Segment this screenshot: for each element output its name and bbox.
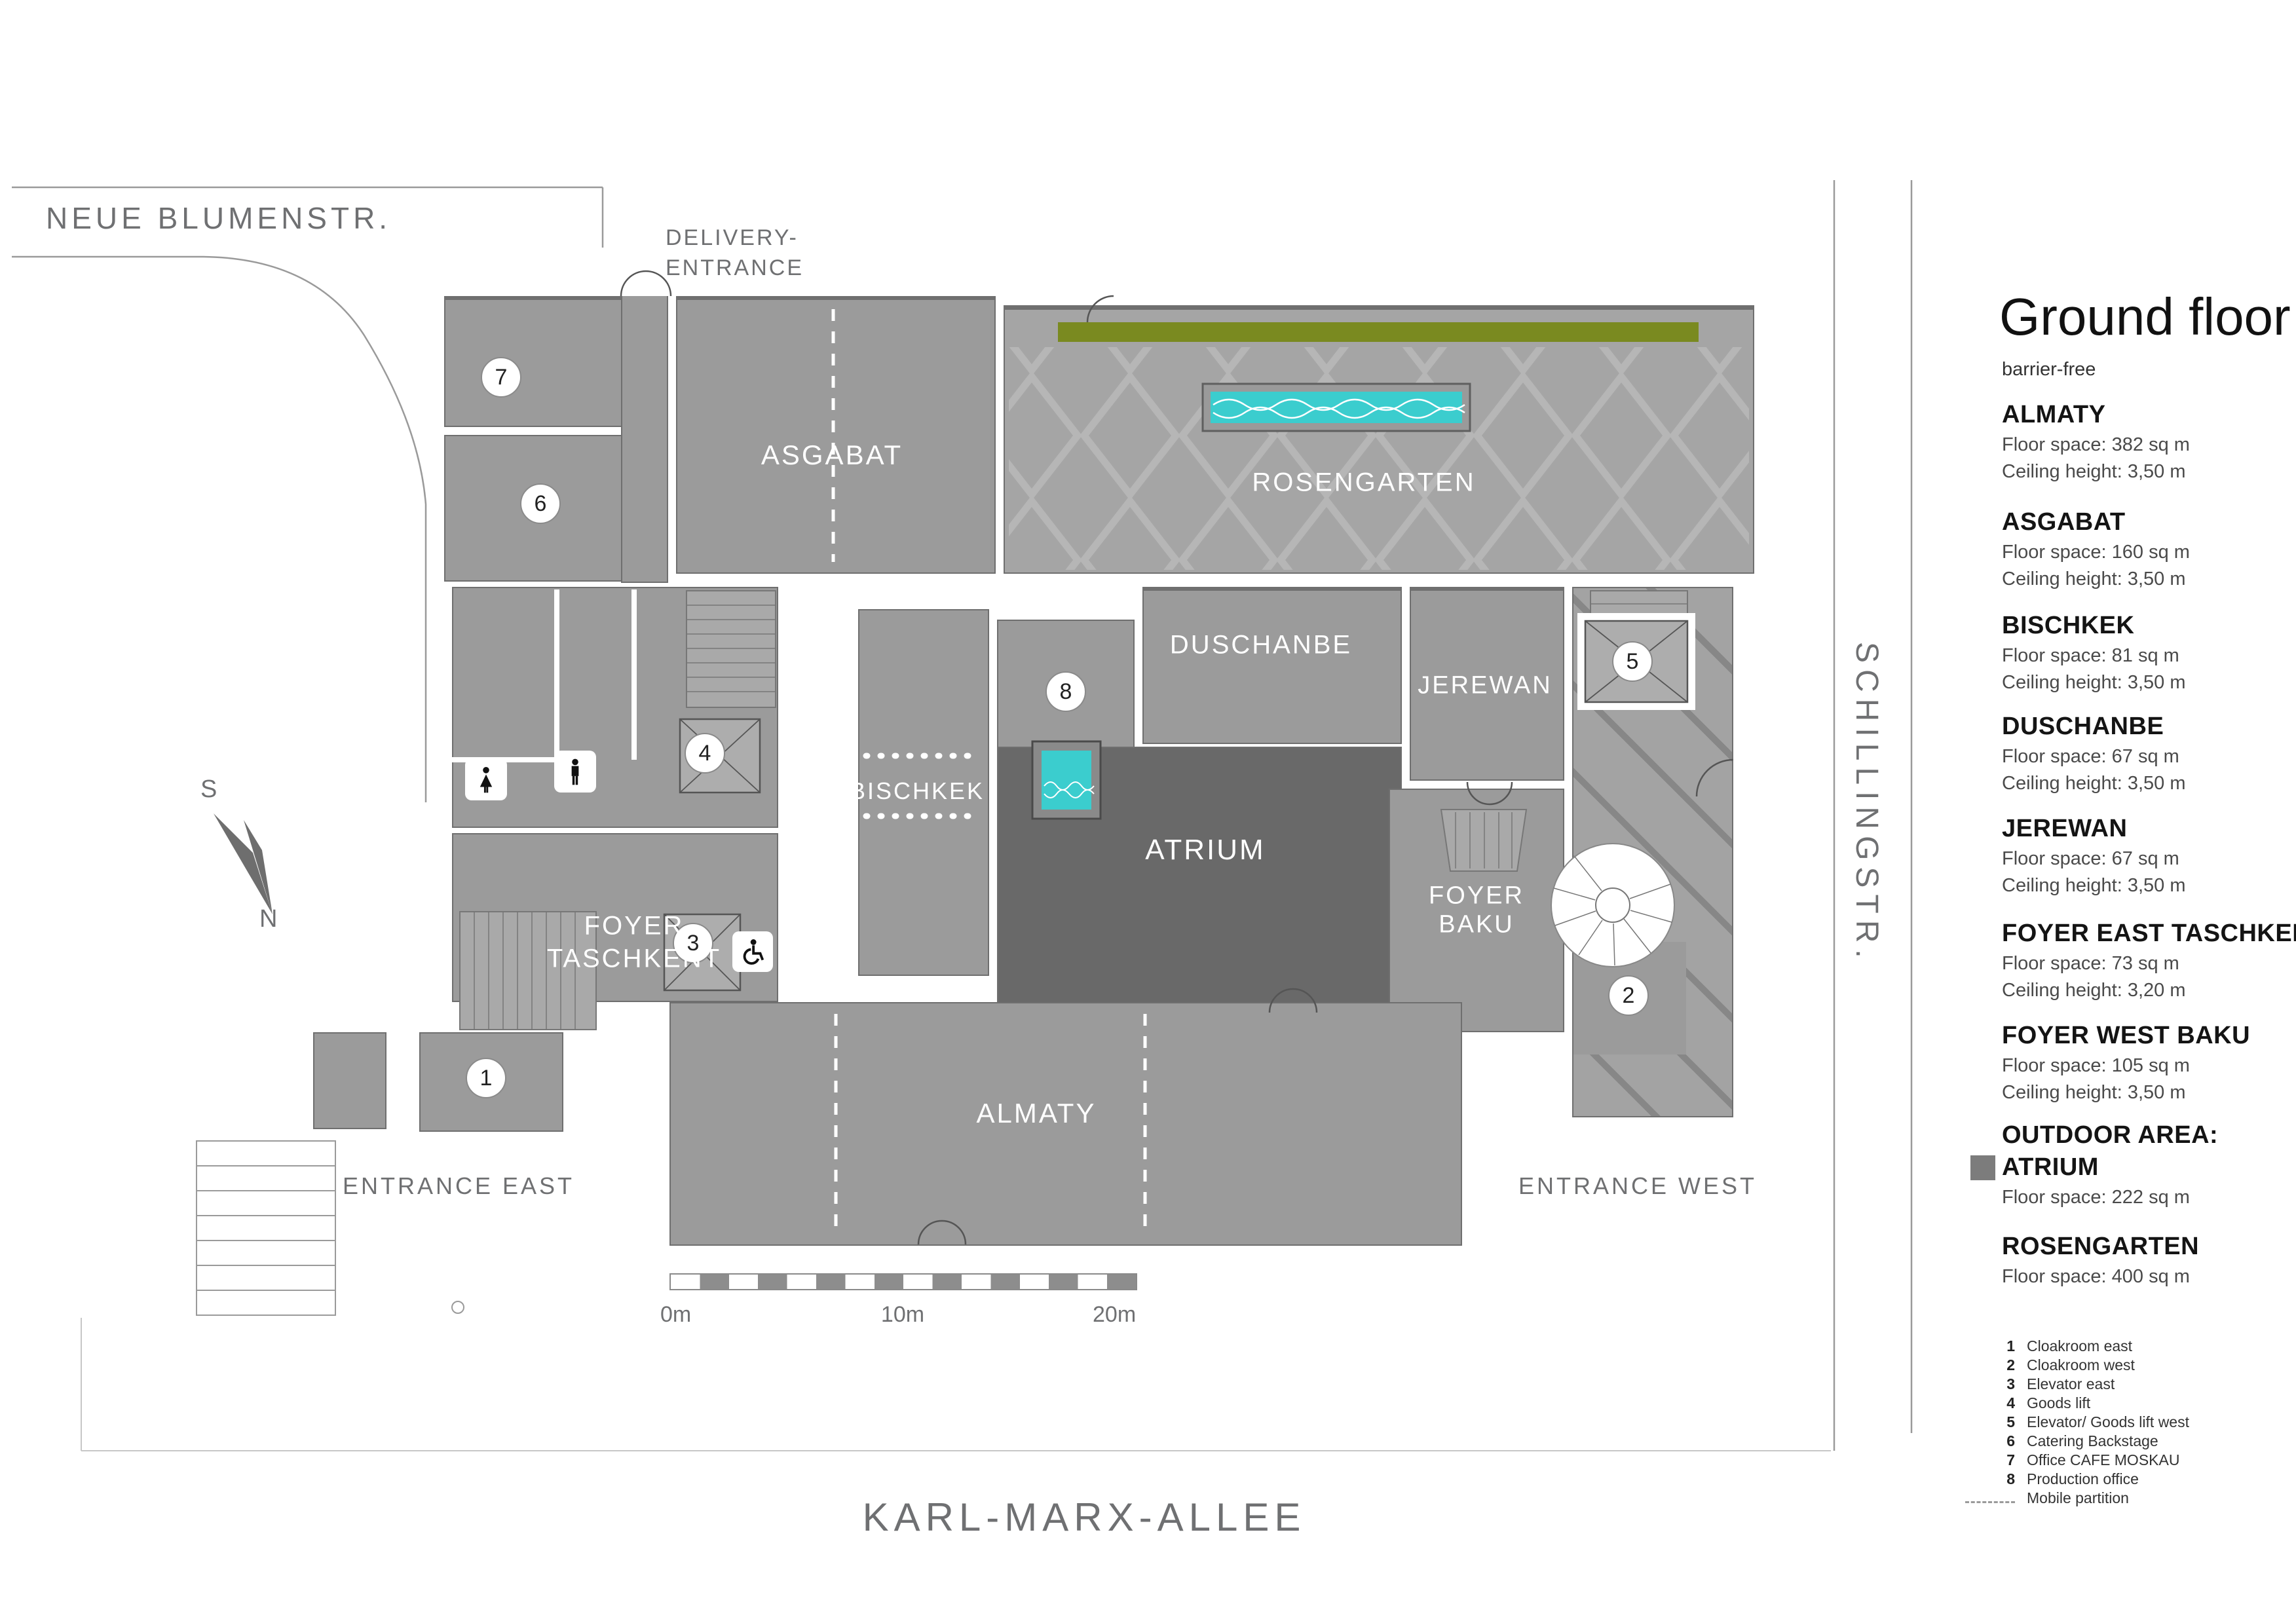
legend-item-4: 4Goods lift xyxy=(1989,1394,2090,1412)
legend-label: Goods lift xyxy=(2027,1394,2090,1412)
room-ceiling-height: Ceiling height: 3,50 m xyxy=(2002,773,2296,794)
rosengarten-trellis-pattern xyxy=(1009,347,1749,570)
label-rosengarten: ROSENGARTEN xyxy=(1252,468,1475,498)
legend-label: Elevator/ Goods lift west xyxy=(2027,1413,2189,1431)
room-name: JEREWAN xyxy=(2002,815,2296,843)
compass-north-label: N xyxy=(259,905,277,933)
label-atrium: ATRIUM xyxy=(1145,834,1265,867)
room-entry-bischkek: BISCHKEK Floor space: 81 sq m Ceiling he… xyxy=(2002,612,2296,694)
wc-women-icon xyxy=(465,758,507,800)
legend-item-2: 2Cloakroom west xyxy=(1989,1356,2135,1374)
marker-catering-backstage: 6 xyxy=(520,483,561,524)
atrium-color-swatch xyxy=(1970,1155,1995,1180)
marker-number: 1 xyxy=(480,1066,493,1091)
room-floor-space: Floor space: 382 sq m xyxy=(2002,434,2296,456)
legend-number: 4 xyxy=(1989,1394,2015,1412)
delivery-line1: DELIVERY- xyxy=(666,223,804,253)
room-floor-space: Floor space: 400 sq m xyxy=(2002,1266,2296,1288)
room-ceiling-height: Ceiling height: 3,50 m xyxy=(2002,569,2296,590)
room-name: ASGABAT xyxy=(2002,508,2296,536)
marker-number: 4 xyxy=(699,741,711,766)
legend-label: Cloakroom east xyxy=(2027,1337,2132,1355)
room-name-line1: OUTDOOR AREA: xyxy=(2002,1121,2296,1149)
stair-east xyxy=(687,591,776,707)
dashed-line-swatch xyxy=(1965,1501,2015,1503)
room-ceiling-height: Ceiling height: 3,20 m xyxy=(2002,980,2296,1001)
street-neue-blumenstr: NEUE BLUMENSTR. xyxy=(46,200,391,236)
label-duschanbe: DUSCHANBE xyxy=(1170,631,1352,660)
label-delivery-entrance: DELIVERY- ENTRANCE xyxy=(666,223,804,283)
room-floor-space: Floor space: 105 sq m xyxy=(2002,1055,2296,1077)
room-floor-space: Floor space: 160 sq m xyxy=(2002,542,2296,563)
plan-linework xyxy=(0,0,2296,1623)
stair-foyer-baku xyxy=(1441,810,1526,871)
room-name: FOYER WEST BAKU xyxy=(2002,1022,2296,1050)
scale-0m: 0m xyxy=(660,1302,691,1328)
marker-office-cafe-moskau: 7 xyxy=(481,357,521,398)
room-name: ALMATY xyxy=(2002,401,2296,429)
room-name: DUSCHANBE xyxy=(2002,713,2296,741)
room-entry-duschanbe: DUSCHANBE Floor space: 67 sq m Ceiling h… xyxy=(2002,713,2296,794)
marker-elevator-west: 5 xyxy=(1612,641,1653,682)
marker-cloakroom-east: 1 xyxy=(466,1058,506,1098)
marker-number: 8 xyxy=(1060,679,1072,705)
wc-men-icon xyxy=(554,751,596,793)
label-foyer-baku-2: BAKU xyxy=(1439,911,1514,939)
compass-needle-icon xyxy=(214,813,273,914)
room-entry-jerewan: JEREWAN Floor space: 67 sq m Ceiling hei… xyxy=(2002,815,2296,897)
room-ceiling-height: Ceiling height: 3,50 m xyxy=(2002,875,2296,897)
label-bischkek: BISCHKEK xyxy=(850,777,985,805)
room-ceiling-height: Ceiling height: 3,50 m xyxy=(2002,672,2296,694)
street-karl-marx-allee: KARL-MARX-ALLEE xyxy=(753,1495,1415,1540)
legend-item-mobile-partition: Mobile partition xyxy=(1989,1489,2129,1507)
room-entry-asgabat: ASGABAT Floor space: 160 sq m Ceiling he… xyxy=(2002,508,2296,590)
room-floor-space: Floor space: 73 sq m xyxy=(2002,953,2296,975)
page-subtitle: barrier-free xyxy=(2002,359,2096,381)
room-floor-space: Floor space: 81 sq m xyxy=(2002,645,2296,667)
legend-label: Office CAFE MOSKAU xyxy=(2027,1451,2179,1469)
scale-bar xyxy=(669,1273,1137,1290)
marker-number: 6 xyxy=(535,491,547,517)
legend-label: Catering Backstage xyxy=(2027,1432,2158,1450)
room-name: ROSENGARTEN xyxy=(2002,1233,2296,1261)
legend-number: 1 xyxy=(1989,1337,2015,1355)
room-entry-foyer-west-baku: FOYER WEST BAKU Floor space: 105 sq m Ce… xyxy=(2002,1022,2296,1104)
marker-goods-lift: 4 xyxy=(685,733,725,774)
label-almaty: ALMATY xyxy=(977,1098,1097,1129)
delivery-line2: ENTRANCE xyxy=(666,253,804,283)
floor-plan-sheet: 1 2 3 4 5 6 7 8 ASGABAT ROSENGARTEN DUSC… xyxy=(0,0,2296,1623)
label-foyer-taschkent: FOYER xyxy=(584,912,685,941)
page-title: Ground floor xyxy=(1999,287,2291,347)
legend-item-1: 1Cloakroom east xyxy=(1989,1337,2132,1355)
label-entrance-west: ENTRANCE WEST xyxy=(1500,1172,1775,1200)
marker-number: 7 xyxy=(495,365,508,390)
spiral-stair xyxy=(1551,844,1674,967)
marker-cloakroom-west: 2 xyxy=(1608,975,1649,1016)
room-floor-space: Floor space: 67 sq m xyxy=(2002,848,2296,870)
legend-item-6: 6Catering Backstage xyxy=(1989,1432,2158,1450)
room-ceiling-height: Ceiling height: 3,50 m xyxy=(2002,1082,2296,1104)
legend-label: Elevator east xyxy=(2027,1375,2115,1393)
label-entrance-east: ENTRANCE EAST xyxy=(314,1172,603,1200)
legend-number: 6 xyxy=(1989,1432,2015,1450)
legend-number: 3 xyxy=(1989,1375,2015,1393)
legend-item-5: 5Elevator/ Goods lift west xyxy=(1989,1413,2189,1431)
legend-item-8: 8Production office xyxy=(1989,1470,2139,1488)
legend-number: 5 xyxy=(1989,1413,2015,1431)
room-entry-almaty: ALMATY Floor space: 382 sq m Ceiling hei… xyxy=(2002,401,2296,483)
wheelchair-icon xyxy=(732,931,773,972)
marker-number: 5 xyxy=(1627,649,1639,675)
room-ceiling-height: Ceiling height: 3,50 m xyxy=(2002,461,2296,483)
label-foyer-taschkent-2: TASCHKENT xyxy=(547,944,721,974)
rosengarten-pool xyxy=(1203,384,1470,431)
compass-south-label: S xyxy=(200,775,217,804)
room-name: FOYER EAST TASCHKENT xyxy=(2002,920,2296,948)
scale-20m: 20m xyxy=(1093,1302,1136,1328)
label-foyer-baku: FOYER xyxy=(1429,882,1524,910)
room-floor-space: Floor space: 222 sq m xyxy=(2002,1187,2296,1208)
marker-number: 2 xyxy=(1623,983,1635,1009)
room-floor-space: Floor space: 67 sq m xyxy=(2002,746,2296,768)
legend-number: 8 xyxy=(1989,1470,2015,1488)
legend-number: 2 xyxy=(1989,1356,2015,1374)
marker-production-office: 8 xyxy=(1045,671,1086,712)
label-jerewan: JEREWAN xyxy=(1418,672,1552,700)
legend-label: Production office xyxy=(2027,1470,2139,1488)
exterior-steps xyxy=(197,1141,464,1315)
room-name-line2: ATRIUM xyxy=(2002,1153,2099,1182)
legend-item-7: 7Office CAFE MOSKAU xyxy=(1989,1451,2179,1469)
street-schillingstr: SCHILLINGSTR. xyxy=(1849,642,1885,965)
legend-label: Cloakroom west xyxy=(2027,1356,2135,1374)
scale-10m: 10m xyxy=(871,1302,934,1328)
legend-number: 7 xyxy=(1989,1451,2015,1469)
room-entry-rosengarten: ROSENGARTEN Floor space: 400 sq m xyxy=(2002,1233,2296,1288)
room-name: BISCHKEK xyxy=(2002,612,2296,640)
legend-item-3: 3Elevator east xyxy=(1989,1375,2115,1393)
atrium-pool xyxy=(1032,741,1101,819)
room-entry-foyer-east-taschkent: FOYER EAST TASCHKENT Floor space: 73 sq … xyxy=(2002,920,2296,1001)
legend-label: Mobile partition xyxy=(2027,1489,2129,1507)
label-asgabat: ASGABAT xyxy=(761,439,903,471)
room-entry-outdoor-atrium: OUTDOOR AREA: ATRIUM Floor space: 222 sq… xyxy=(2002,1121,2296,1208)
